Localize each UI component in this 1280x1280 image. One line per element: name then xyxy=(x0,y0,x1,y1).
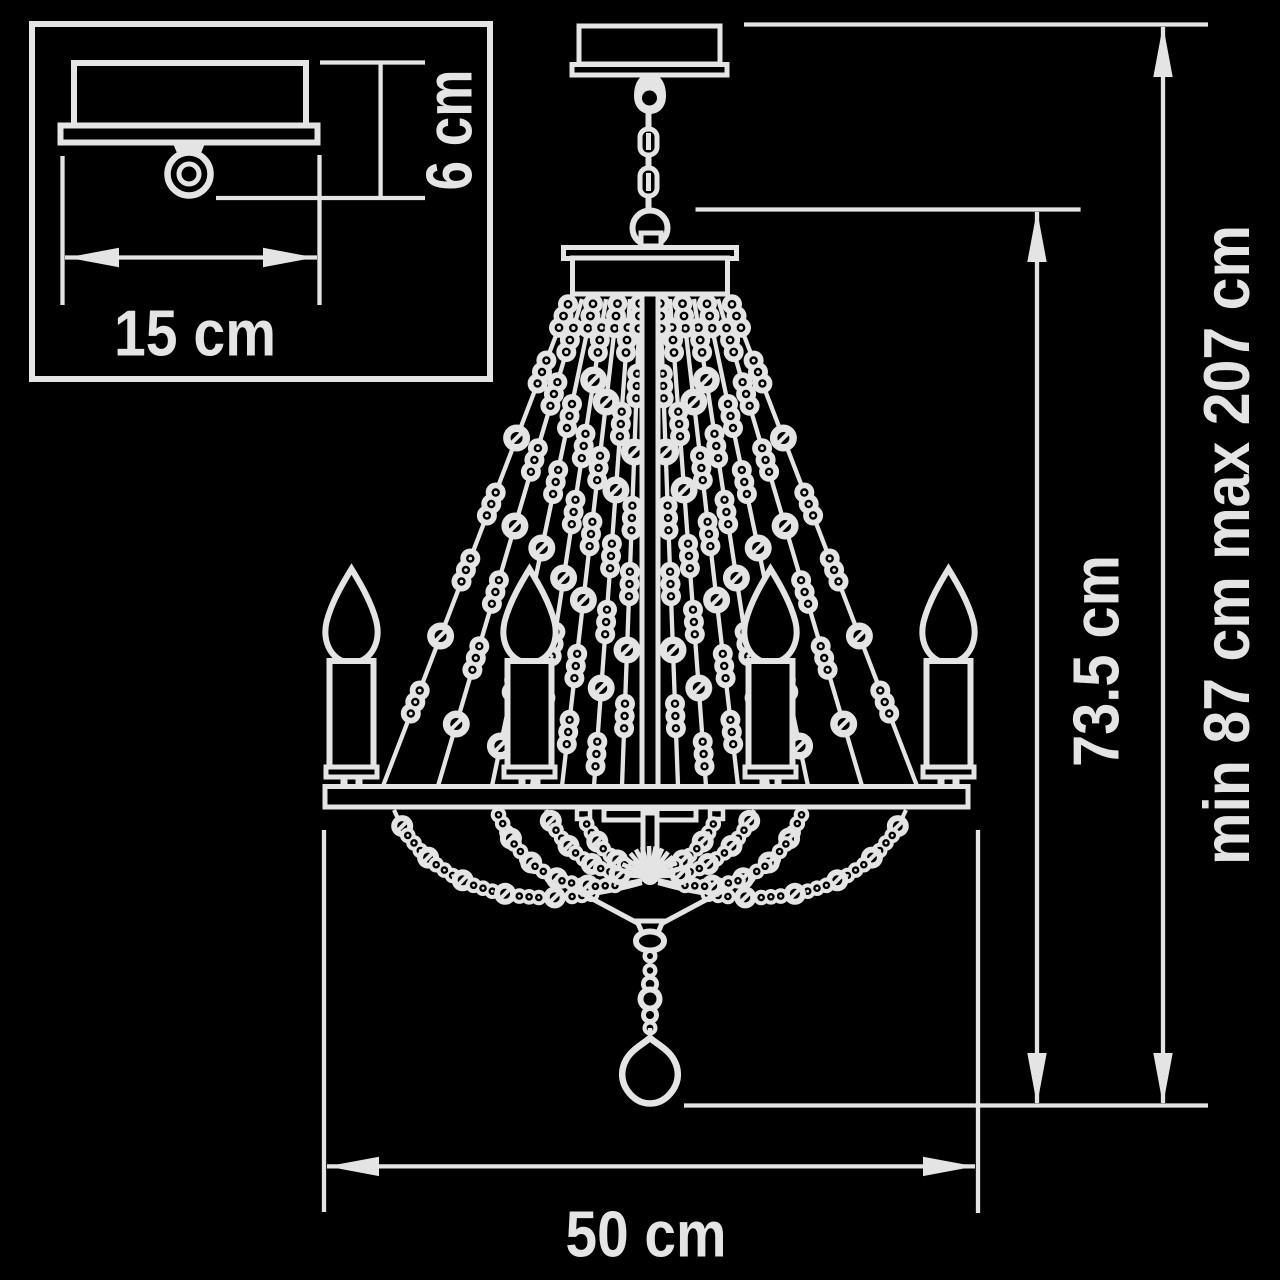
svg-text:15 cm: 15 cm xyxy=(114,297,276,370)
svg-text:6 cm: 6 cm xyxy=(413,70,486,191)
svg-text:50 cm: 50 cm xyxy=(566,1198,727,1271)
svg-text:min 87 cm max 207 cm: min 87 cm max 207 cm xyxy=(1190,225,1263,865)
svg-text:73.5 cm: 73.5 cm xyxy=(1060,555,1133,767)
